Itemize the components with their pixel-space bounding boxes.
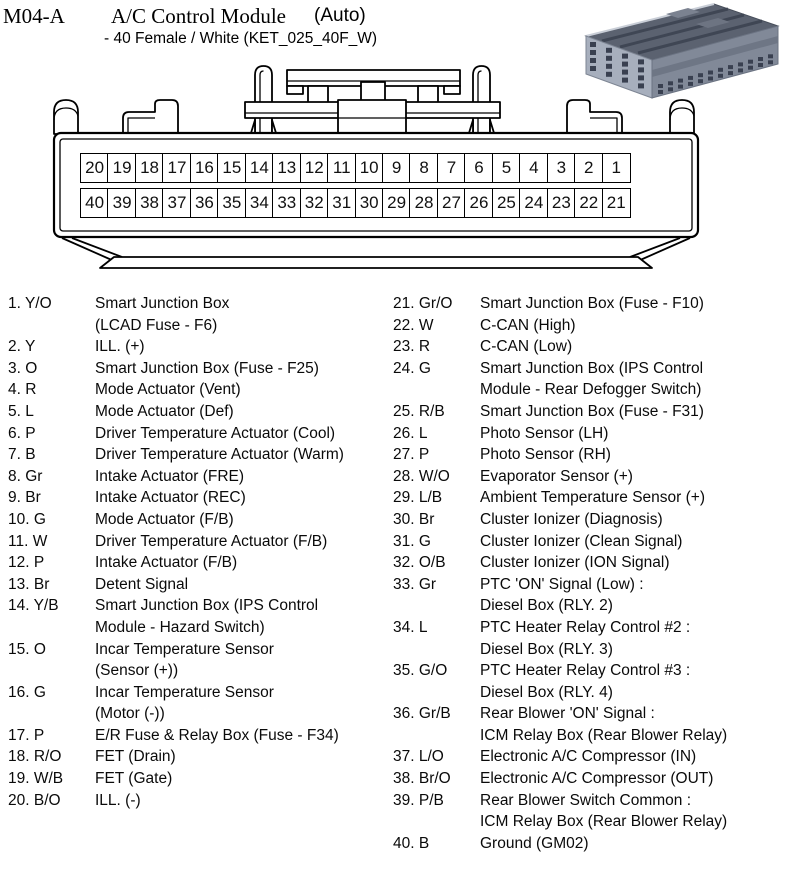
pin-number-and-wire-color: 30. Br <box>393 509 480 531</box>
pin-cell-2: 2 <box>574 153 603 183</box>
pin-description: Cluster Ionizer (Clean Signal) <box>480 531 785 553</box>
pin-entry-30: 30. BrCluster Ionizer (Diagnosis) <box>393 509 785 531</box>
pin-entry-22: 22. WC-CAN (High) <box>393 315 785 337</box>
pin-cell-10: 10 <box>355 153 384 183</box>
pin-entry-8: 8. GrIntake Actuator (FRE) <box>8 466 386 488</box>
pin-cell-17: 17 <box>162 153 191 183</box>
pin-number-and-wire-color: 10. G <box>8 509 95 531</box>
pin-entry-15: 15. OIncar Temperature Sensor(Sensor (+)… <box>8 639 386 682</box>
pin-entry-2: 2. YILL. (+) <box>8 336 386 358</box>
pin-row-top: 2019181716151413121110987654321 <box>80 153 665 183</box>
pin-cell-12: 12 <box>300 153 329 183</box>
pin-entry-38: 38. Br/OElectronic A/C Compressor (OUT) <box>393 768 785 790</box>
pin-cell-6: 6 <box>464 153 493 183</box>
pin-entry-40: 40. BGround (GM02) <box>393 833 785 855</box>
pin-description: Electronic A/C Compressor (OUT) <box>480 768 785 790</box>
pin-entry-19: 19. W/BFET (Gate) <box>8 768 386 790</box>
pin-number-and-wire-color: 24. G <box>393 358 480 401</box>
pin-entry-9: 9. BrIntake Actuator (REC) <box>8 487 386 509</box>
pin-description: C-CAN (Low) <box>480 336 785 358</box>
page-title: A/C Control Module <box>111 4 286 29</box>
pin-description: Driver Temperature Actuator (F/B) <box>95 531 386 553</box>
pin-description: Intake Actuator (F/B) <box>95 552 386 574</box>
pin-number-and-wire-color: 7. B <box>8 444 95 466</box>
pin-cell-9: 9 <box>382 153 411 183</box>
pin-cell-37: 37 <box>162 188 191 218</box>
pin-entry-31: 31. GCluster Ionizer (Clean Signal) <box>393 531 785 553</box>
pin-entry-27: 27. PPhoto Sensor (RH) <box>393 444 785 466</box>
pin-entry-18: 18. R/OFET (Drain) <box>8 746 386 768</box>
pin-entry-11: 11. WDriver Temperature Actuator (F/B) <box>8 531 386 553</box>
pin-number-and-wire-color: 12. P <box>8 552 95 574</box>
pin-number-and-wire-color: 22. W <box>393 315 480 337</box>
pin-description: FET (Gate) <box>95 768 386 790</box>
pin-cell-35: 35 <box>217 188 246 218</box>
pin-description: PTC 'ON' Signal (Low) :Diesel Box (RLY. … <box>480 574 785 617</box>
pin-number-and-wire-color: 4. R <box>8 379 95 401</box>
pin-description: Photo Sensor (LH) <box>480 423 785 445</box>
pin-cell-24: 24 <box>519 188 548 218</box>
pin-number-and-wire-color: 37. L/O <box>393 746 480 768</box>
pin-cell-22: 22 <box>574 188 603 218</box>
pin-entry-6: 6. PDriver Temperature Actuator (Cool) <box>8 423 386 445</box>
pin-entry-10: 10. GMode Actuator (F/B) <box>8 509 386 531</box>
connector-spec: - 40 Female / White (KET_025_40F_W) <box>104 30 377 48</box>
pin-description: Detent Signal <box>95 574 386 596</box>
pin-description: PTC Heater Relay Control #2 :Diesel Box … <box>480 617 785 660</box>
pin-number-and-wire-color: 18. R/O <box>8 746 95 768</box>
pin-number-and-wire-color: 11. W <box>8 531 95 553</box>
pin-cell-28: 28 <box>409 188 438 218</box>
pin-number-and-wire-color: 36. Gr/B <box>393 703 480 746</box>
pin-entry-16: 16. GIncar Temperature Sensor(Motor (-)) <box>8 682 386 725</box>
pin-number-and-wire-color: 1. Y/O <box>8 293 95 336</box>
pin-description: Intake Actuator (REC) <box>95 487 386 509</box>
pin-entry-4: 4. RMode Actuator (Vent) <box>8 379 386 401</box>
pin-number-and-wire-color: 29. L/B <box>393 487 480 509</box>
pin-number-and-wire-color: 20. B/O <box>8 790 95 812</box>
pin-cell-32: 32 <box>300 188 329 218</box>
pin-description: Rear Blower 'ON' Signal :ICM Relay Box (… <box>480 703 785 746</box>
pin-number-and-wire-color: 8. Gr <box>8 466 95 488</box>
pin-entry-24: 24. GSmart Junction Box (IPS ControlModu… <box>393 358 785 401</box>
pin-entry-12: 12. PIntake Actuator (F/B) <box>8 552 386 574</box>
connector-3d-photo <box>576 0 787 102</box>
pin-cell-3: 3 <box>547 153 576 183</box>
pin-entry-3: 3. OSmart Junction Box (Fuse - F25) <box>8 358 386 380</box>
pin-cell-15: 15 <box>217 153 246 183</box>
connector-id: M04-A <box>3 4 65 29</box>
variant-label: (Auto) <box>314 5 366 27</box>
pin-entry-1: 1. Y/OSmart Junction Box(LCAD Fuse - F6) <box>8 293 386 336</box>
pin-description: Smart Junction Box(LCAD Fuse - F6) <box>95 293 386 336</box>
pin-cell-5: 5 <box>492 153 521 183</box>
pin-description: Cluster Ionizer (ION Signal) <box>480 552 785 574</box>
pin-description: C-CAN (High) <box>480 315 785 337</box>
pin-entry-35: 35. G/OPTC Heater Relay Control #3 :Dies… <box>393 660 785 703</box>
pin-description: Cluster Ionizer (Diagnosis) <box>480 509 785 531</box>
pin-entry-7: 7. BDriver Temperature Actuator (Warm) <box>8 444 386 466</box>
pin-description: Evaporator Sensor (+) <box>480 466 785 488</box>
pin-cell-26: 26 <box>464 188 493 218</box>
pin-description: E/R Fuse & Relay Box (Fuse - F34) <box>95 725 386 747</box>
pin-cell-19: 19 <box>107 153 136 183</box>
pin-list-21-40: 21. Gr/OSmart Junction Box (Fuse - F10)2… <box>393 293 785 854</box>
pin-entry-36: 36. Gr/BRear Blower 'ON' Signal :ICM Rel… <box>393 703 785 746</box>
connector-photo <box>576 0 787 102</box>
pin-entry-37: 37. L/OElectronic A/C Compressor (IN) <box>393 746 785 768</box>
pin-number-and-wire-color: 34. L <box>393 617 480 660</box>
pin-description: Rear Blower Switch Common :ICM Relay Box… <box>480 790 785 833</box>
pin-entry-14: 14. Y/BSmart Junction Box (IPS ControlMo… <box>8 595 386 638</box>
pin-number-and-wire-color: 33. Gr <box>393 574 480 617</box>
pin-entry-17: 17. PE/R Fuse & Relay Box (Fuse - F34) <box>8 725 386 747</box>
pin-description: Mode Actuator (Vent) <box>95 379 386 401</box>
pin-cell-31: 31 <box>327 188 356 218</box>
pin-cell-39: 39 <box>107 188 136 218</box>
pin-number-and-wire-color: 16. G <box>8 682 95 725</box>
pin-number-and-wire-color: 38. Br/O <box>393 768 480 790</box>
pin-entry-33: 33. GrPTC 'ON' Signal (Low) :Diesel Box … <box>393 574 785 617</box>
pin-number-and-wire-color: 13. Br <box>8 574 95 596</box>
pin-cell-21: 21 <box>602 188 631 218</box>
pin-entry-28: 28. W/OEvaporator Sensor (+) <box>393 466 785 488</box>
pin-number-and-wire-color: 31. G <box>393 531 480 553</box>
pin-description: Incar Temperature Sensor(Motor (-)) <box>95 682 386 725</box>
pin-number-and-wire-color: 5. L <box>8 401 95 423</box>
pin-cell-38: 38 <box>135 188 164 218</box>
pin-description: PTC Heater Relay Control #3 :Diesel Box … <box>480 660 785 703</box>
pin-number-and-wire-color: 25. R/B <box>393 401 480 423</box>
pin-cell-20: 20 <box>80 153 109 183</box>
pin-cell-4: 4 <box>519 153 548 183</box>
pin-entry-5: 5. LMode Actuator (Def) <box>8 401 386 423</box>
pin-number-and-wire-color: 40. B <box>393 833 480 855</box>
pin-cell-7: 7 <box>437 153 466 183</box>
pin-entry-20: 20. B/OILL. (-) <box>8 790 386 812</box>
pin-number-and-wire-color: 15. O <box>8 639 95 682</box>
pin-cell-18: 18 <box>135 153 164 183</box>
pin-description: Smart Junction Box (Fuse - F25) <box>95 358 386 380</box>
pin-number-and-wire-color: 17. P <box>8 725 95 747</box>
pin-entry-32: 32. O/BCluster Ionizer (ION Signal) <box>393 552 785 574</box>
pinout-page: M04-A A/C Control Module (Auto) - 40 Fem… <box>0 0 787 881</box>
pin-entry-13: 13. BrDetent Signal <box>8 574 386 596</box>
pin-description: Smart Junction Box (IPS ControlModule - … <box>480 358 785 401</box>
pin-number-and-wire-color: 2. Y <box>8 336 95 358</box>
pin-description: FET (Drain) <box>95 746 386 768</box>
pin-cell-30: 30 <box>355 188 384 218</box>
pin-entry-39: 39. P/BRear Blower Switch Common :ICM Re… <box>393 790 785 833</box>
pin-description: Mode Actuator (Def) <box>95 401 386 423</box>
pin-cell-13: 13 <box>272 153 301 183</box>
pin-description: Electronic A/C Compressor (IN) <box>480 746 785 768</box>
pin-description: Ground (GM02) <box>480 833 785 855</box>
pin-cell-16: 16 <box>190 153 219 183</box>
pin-number-and-wire-color: 9. Br <box>8 487 95 509</box>
pin-description: Photo Sensor (RH) <box>480 444 785 466</box>
pin-number-and-wire-color: 39. P/B <box>393 790 480 833</box>
pin-description: ILL. (+) <box>95 336 386 358</box>
pin-cell-36: 36 <box>190 188 219 218</box>
pin-number-and-wire-color: 27. P <box>393 444 480 466</box>
pin-description: Intake Actuator (FRE) <box>95 466 386 488</box>
pin-description: Incar Temperature Sensor(Sensor (+)) <box>95 639 386 682</box>
pin-entry-26: 26. LPhoto Sensor (LH) <box>393 423 785 445</box>
pin-description: Driver Temperature Actuator (Cool) <box>95 423 386 445</box>
pin-entry-23: 23. RC-CAN (Low) <box>393 336 785 358</box>
pin-number-and-wire-color: 14. Y/B <box>8 595 95 638</box>
pin-description: Driver Temperature Actuator (Warm) <box>95 444 386 466</box>
pin-number-and-wire-color: 21. Gr/O <box>393 293 480 315</box>
pin-description: Smart Junction Box (Fuse - F31) <box>480 401 785 423</box>
pin-entry-34: 34. LPTC Heater Relay Control #2 :Diesel… <box>393 617 785 660</box>
pin-cell-1: 1 <box>602 153 631 183</box>
pin-number-and-wire-color: 32. O/B <box>393 552 480 574</box>
pin-number-and-wire-color: 35. G/O <box>393 660 480 703</box>
pin-entry-25: 25. R/BSmart Junction Box (Fuse - F31) <box>393 401 785 423</box>
pin-entry-21: 21. Gr/OSmart Junction Box (Fuse - F10) <box>393 293 785 315</box>
pin-cell-29: 29 <box>382 188 411 218</box>
pin-list-1-20: 1. Y/OSmart Junction Box(LCAD Fuse - F6)… <box>8 293 386 811</box>
pin-description: Smart Junction Box (IPS ControlModule - … <box>95 595 386 638</box>
pin-entry-29: 29. L/BAmbient Temperature Sensor (+) <box>393 487 785 509</box>
pin-row-bottom: 4039383736353433323130292827262524232221 <box>80 188 665 218</box>
pin-cell-33: 33 <box>272 188 301 218</box>
pin-cell-23: 23 <box>547 188 576 218</box>
pin-description: Mode Actuator (F/B) <box>95 509 386 531</box>
pin-cell-14: 14 <box>245 153 274 183</box>
pin-cell-34: 34 <box>245 188 274 218</box>
pin-number-and-wire-color: 23. R <box>393 336 480 358</box>
pin-cell-8: 8 <box>409 153 438 183</box>
pin-description: Smart Junction Box (Fuse - F10) <box>480 293 785 315</box>
pin-description: ILL. (-) <box>95 790 386 812</box>
pin-number-and-wire-color: 6. P <box>8 423 95 445</box>
pin-description: Ambient Temperature Sensor (+) <box>480 487 785 509</box>
pin-cell-40: 40 <box>80 188 109 218</box>
pin-number-and-wire-color: 26. L <box>393 423 480 445</box>
pin-cell-11: 11 <box>327 153 356 183</box>
pin-number-and-wire-color: 19. W/B <box>8 768 95 790</box>
pin-number-and-wire-color: 3. O <box>8 358 95 380</box>
pin-cell-27: 27 <box>437 188 466 218</box>
pin-number-and-wire-color: 28. W/O <box>393 466 480 488</box>
pin-cell-25: 25 <box>492 188 521 218</box>
